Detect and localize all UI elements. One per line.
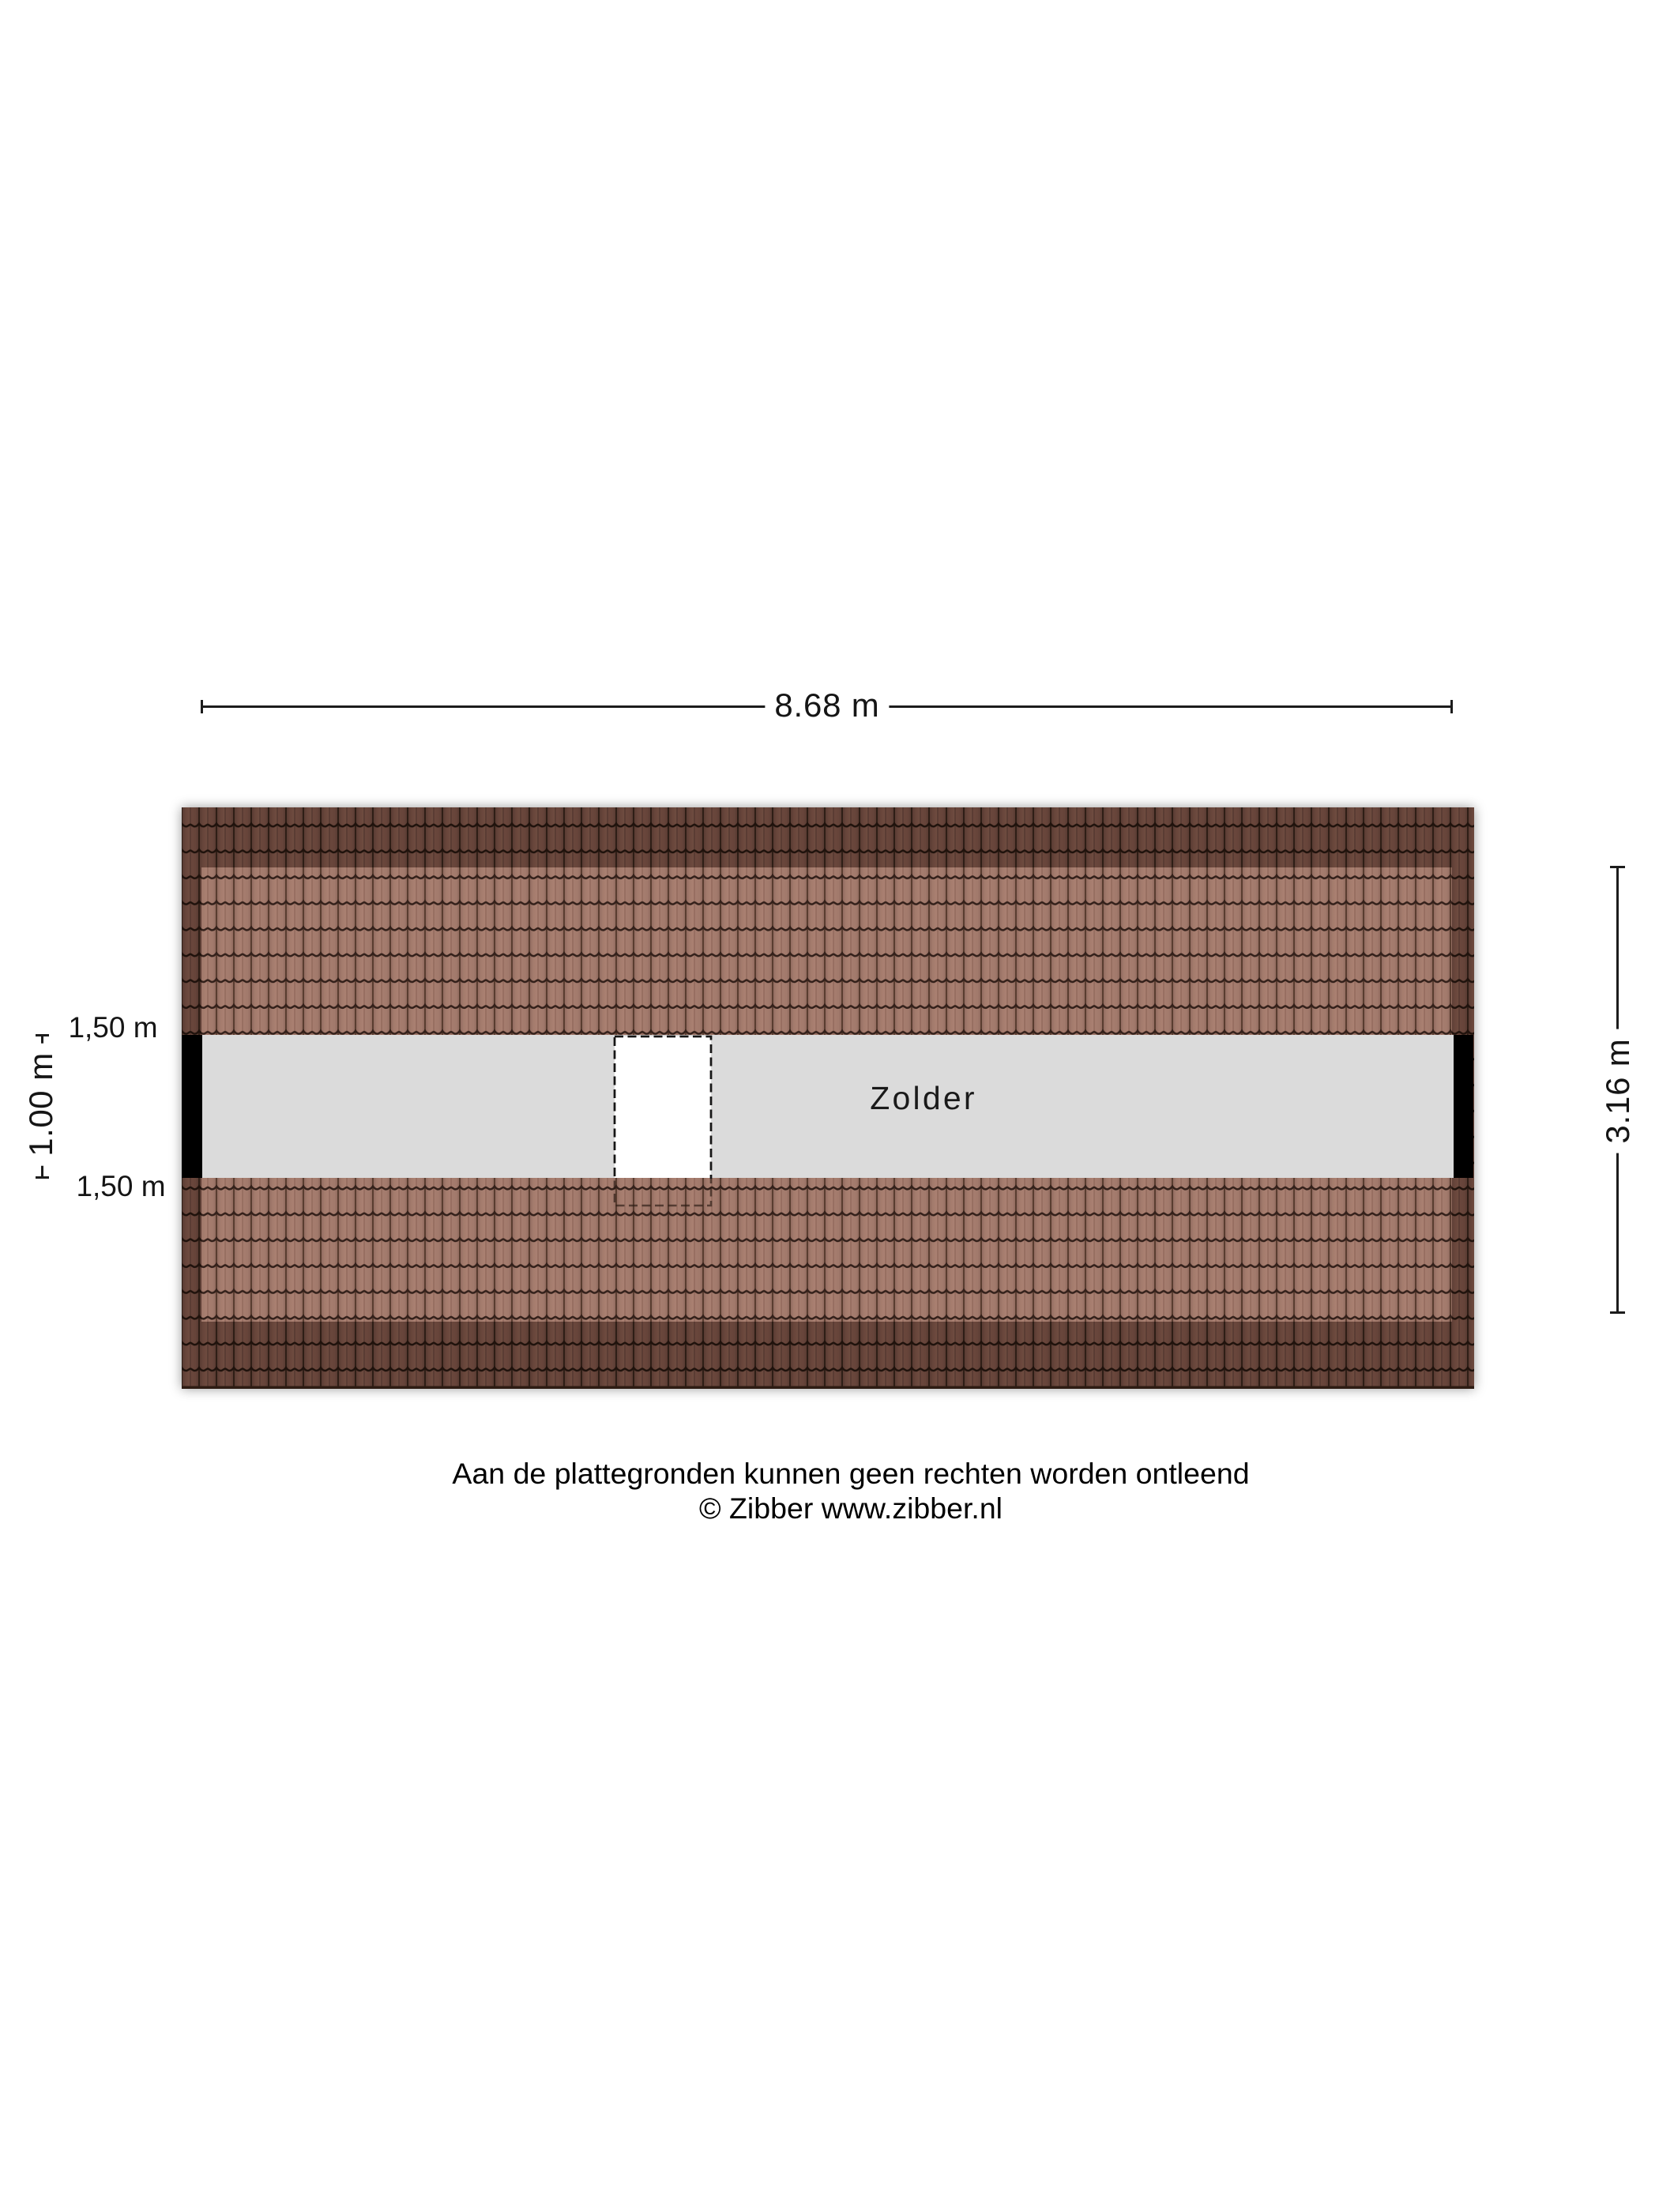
svg-text:Zolder: Zolder xyxy=(870,1080,976,1116)
